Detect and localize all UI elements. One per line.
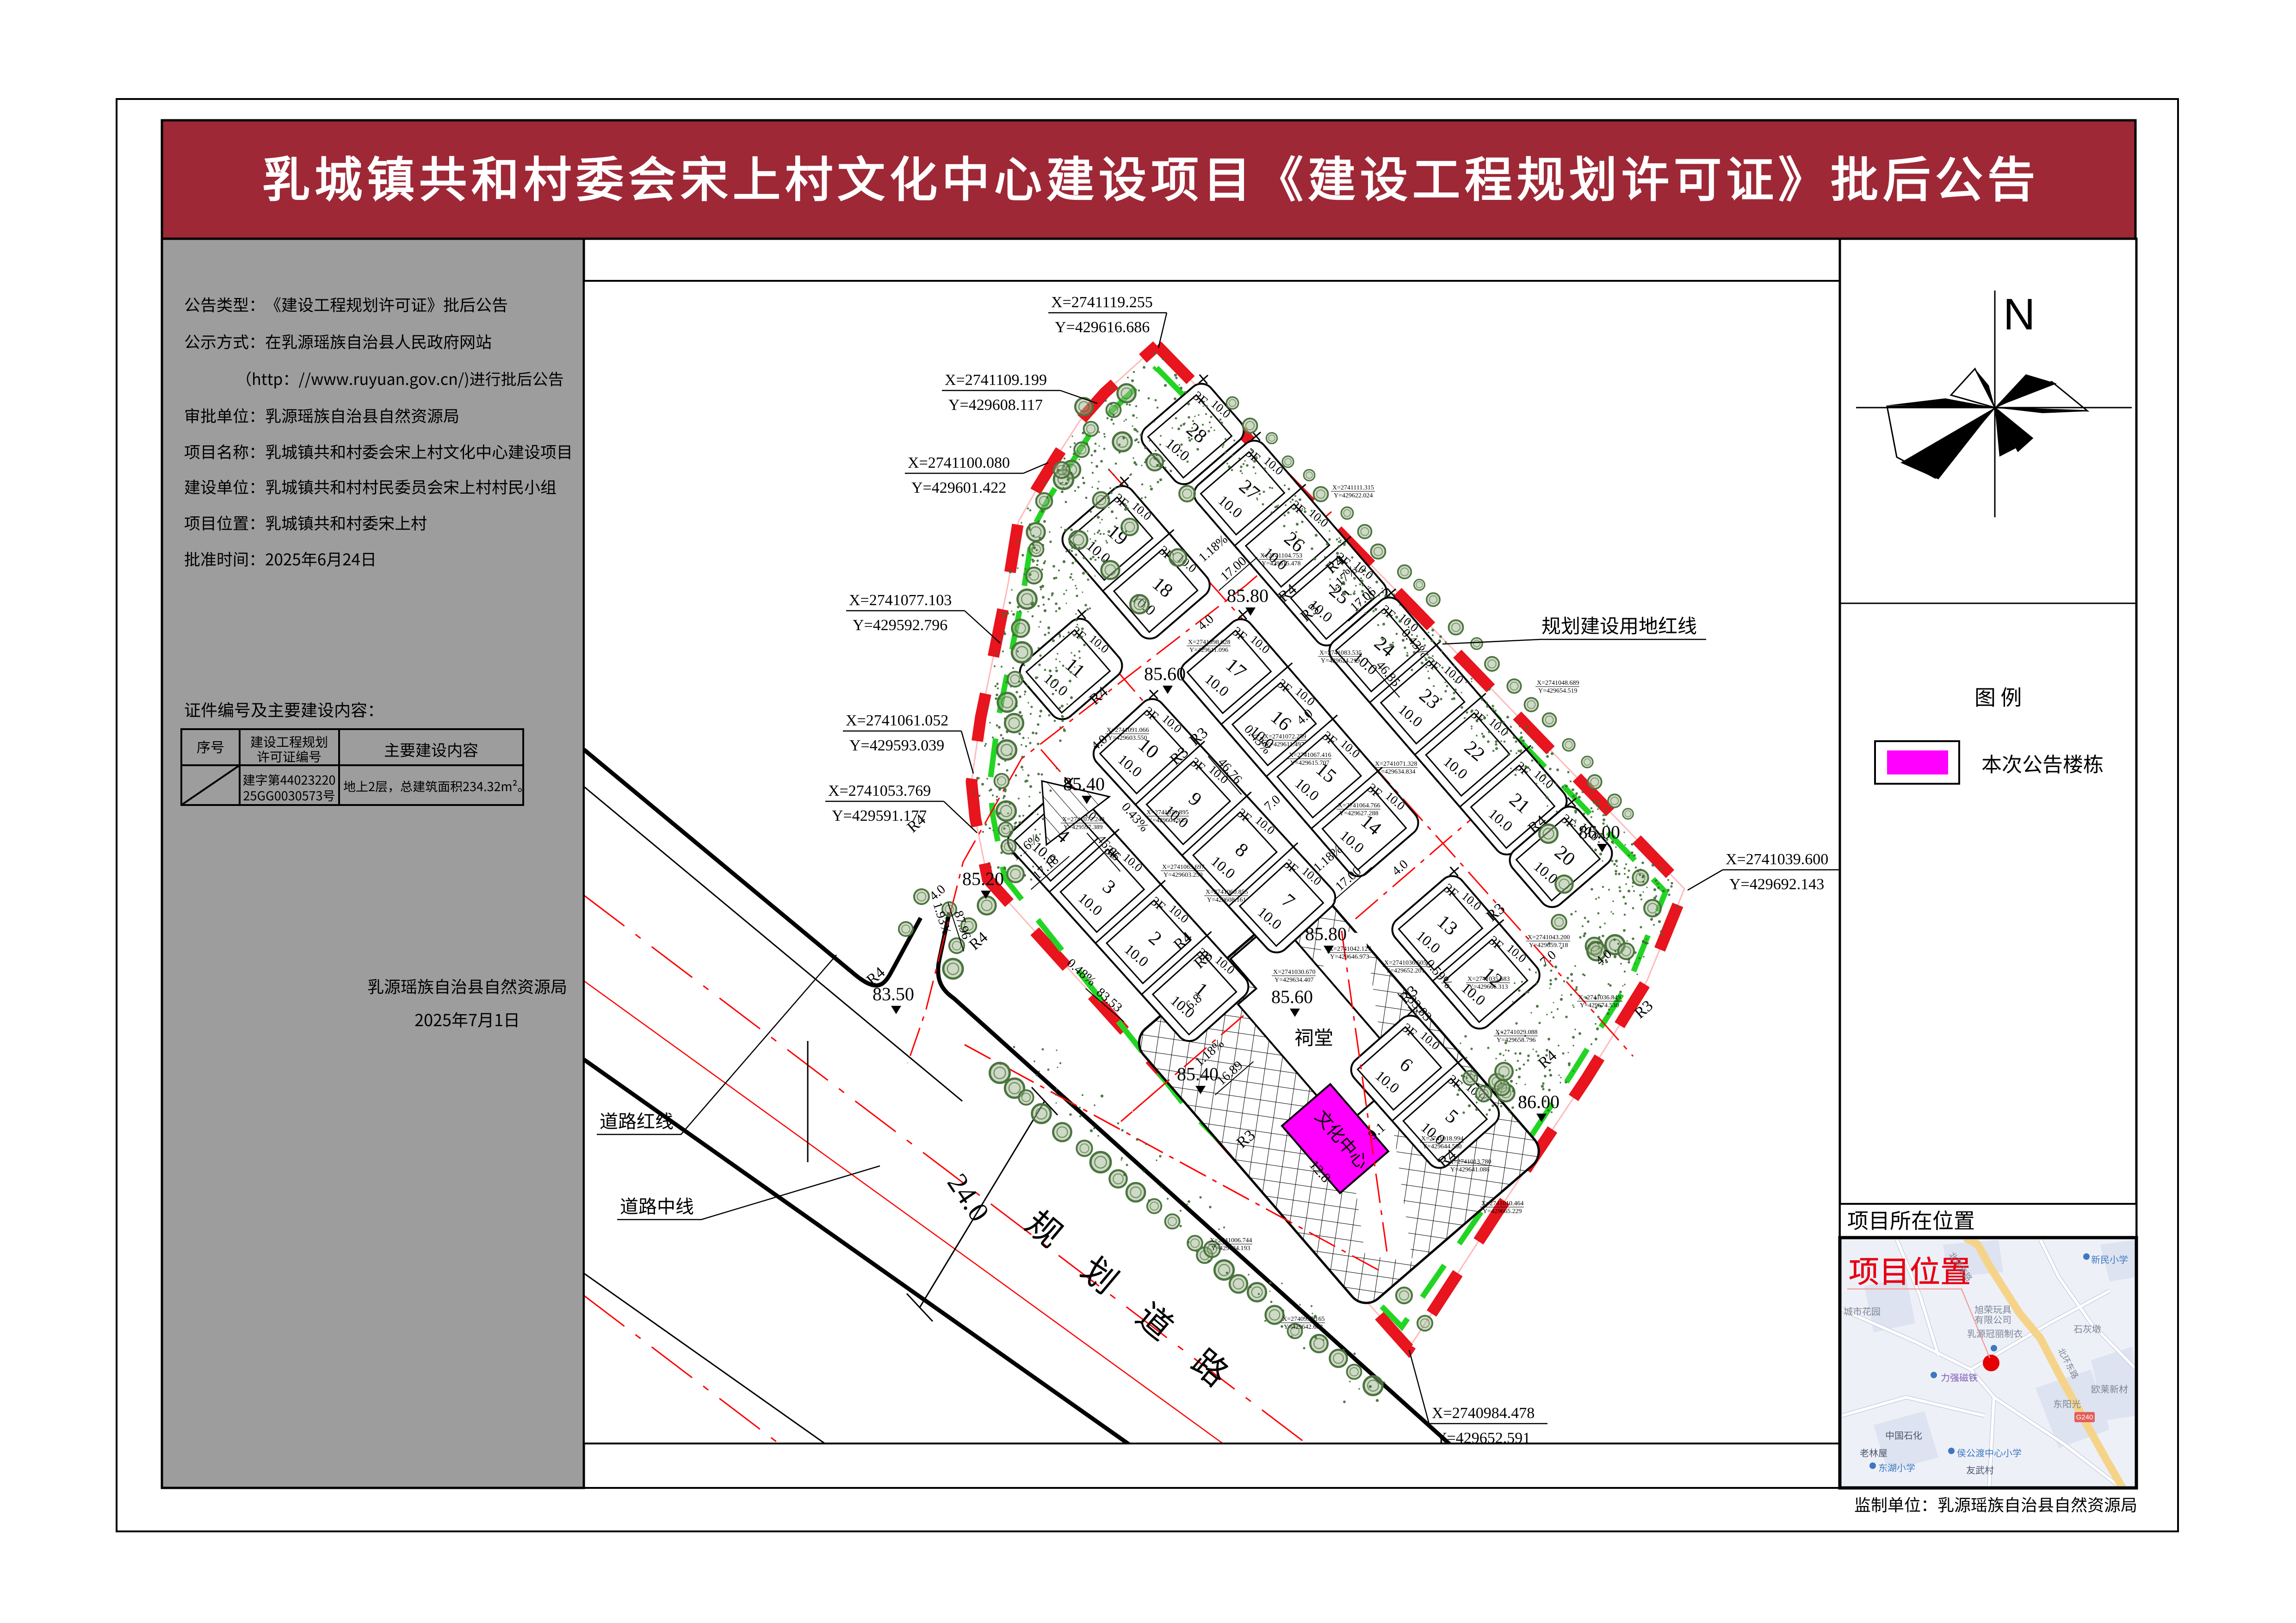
svg-text:Y=429665.229: Y=429665.229 bbox=[1483, 1208, 1522, 1215]
svg-text:X=2741119.255: X=2741119.255 bbox=[1051, 294, 1153, 311]
svg-text:Y=429615.478: Y=429615.478 bbox=[1262, 560, 1301, 567]
svg-text:Y=429611.497: Y=429611.497 bbox=[1265, 741, 1304, 748]
svg-text:Y=429658.796: Y=429658.796 bbox=[1497, 1037, 1536, 1044]
svg-text:Y=429652.201: Y=429652.201 bbox=[1386, 967, 1425, 974]
svg-text:X=2741048.689: X=2741048.689 bbox=[1537, 680, 1579, 687]
svg-text:85.40: 85.40 bbox=[1063, 774, 1105, 794]
svg-text:Y=429597.389: Y=429597.389 bbox=[1064, 824, 1103, 831]
svg-text:Y=429634.407: Y=429634.407 bbox=[1275, 977, 1314, 984]
svg-text:Y=429608.161: Y=429608.161 bbox=[1207, 897, 1246, 904]
svg-text:X=2741039.600: X=2741039.600 bbox=[1726, 851, 1828, 868]
svg-text:85.60: 85.60 bbox=[1271, 986, 1313, 1007]
svg-text:X=2741053.769: X=2741053.769 bbox=[828, 782, 931, 799]
svg-text:Y=429634.193: Y=429634.193 bbox=[1211, 1245, 1250, 1252]
svg-text:X=2741061.052: X=2741061.052 bbox=[846, 712, 948, 729]
svg-text:Y=429692.143: Y=429692.143 bbox=[1729, 876, 1824, 893]
svg-text:X=2741013.780: X=2741013.780 bbox=[1449, 1158, 1491, 1165]
svg-text:X=2740984.478: X=2740984.478 bbox=[1432, 1405, 1535, 1422]
svg-text:G240: G240 bbox=[2076, 1413, 2093, 1421]
svg-text:Y=429622.024: Y=429622.024 bbox=[1334, 492, 1373, 499]
svg-text:85.20: 85.20 bbox=[962, 868, 1004, 889]
svg-text:Y=429615.707: Y=429615.707 bbox=[1290, 760, 1330, 767]
svg-text:X=2741109.199: X=2741109.199 bbox=[945, 372, 1047, 389]
svg-text:Y=429659.718: Y=429659.718 bbox=[1529, 942, 1568, 949]
svg-text:X=2741083.535: X=2741083.535 bbox=[1319, 650, 1362, 657]
svg-text:Y=429666.313: Y=429666.313 bbox=[1469, 984, 1508, 991]
svg-text:Y=429627.288: Y=429627.288 bbox=[1339, 810, 1379, 817]
svg-text:86.00: 86.00 bbox=[1578, 822, 1620, 842]
svg-text:83.50: 83.50 bbox=[873, 984, 914, 1004]
svg-text:X=2741065.697: X=2741065.697 bbox=[1162, 864, 1205, 871]
svg-text:Y=429634.834: Y=429634.834 bbox=[1376, 768, 1416, 775]
svg-text:X=2741071.328: X=2741071.328 bbox=[1375, 761, 1417, 768]
svg-text:X=2741104.753: X=2741104.753 bbox=[1260, 552, 1302, 559]
svg-text:X=2741111.315: X=2741111.315 bbox=[1332, 484, 1374, 491]
svg-text:X=2741006.744: X=2741006.744 bbox=[1210, 1237, 1252, 1244]
svg-text:X=2741072.259: X=2741072.259 bbox=[1264, 733, 1306, 740]
svg-text:Y=429642.683: Y=429642.683 bbox=[1284, 1324, 1323, 1331]
svg-text:Y=429591.177: Y=429591.177 bbox=[832, 807, 927, 824]
svg-text:X=2741042.127: X=2741042.127 bbox=[1329, 946, 1371, 953]
svg-text:X=2741064.766: X=2741064.766 bbox=[1338, 802, 1380, 809]
svg-text:X=2741091.066: X=2741091.066 bbox=[1107, 727, 1149, 734]
svg-text:X=2741077.103: X=2741077.103 bbox=[849, 592, 952, 609]
svg-text:X=2741036.849: X=2741036.849 bbox=[1578, 994, 1621, 1001]
svg-text:85.60: 85.60 bbox=[1144, 663, 1186, 684]
svg-text:X=2741018.994: X=2741018.994 bbox=[1421, 1135, 1464, 1142]
svg-text:X=2741060.855: X=2741060.855 bbox=[1206, 889, 1248, 896]
svg-text:Y=429593.039: Y=429593.039 bbox=[849, 737, 944, 754]
svg-text:Y=429592.796: Y=429592.796 bbox=[853, 617, 947, 634]
svg-text:Y=429644.560: Y=429644.560 bbox=[1423, 1143, 1462, 1150]
svg-text:85.80: 85.80 bbox=[1305, 923, 1347, 944]
svg-text:X=2741100.080: X=2741100.080 bbox=[908, 454, 1010, 471]
svg-text:X=2741098.628: X=2741098.628 bbox=[1188, 639, 1231, 646]
svg-text:Y=429601.422: Y=429601.422 bbox=[911, 479, 1006, 496]
svg-text:Y=429603.250: Y=429603.250 bbox=[1163, 872, 1203, 879]
svg-text:X=2741035.683: X=2741035.683 bbox=[1467, 976, 1510, 983]
svg-text:X=2741029.088: X=2741029.088 bbox=[1495, 1029, 1538, 1036]
svg-text:Y=429654.519: Y=429654.519 bbox=[1538, 688, 1578, 694]
svg-text:X=2741079.895: X=2741079.895 bbox=[1146, 809, 1189, 816]
svg-text:N: N bbox=[2003, 290, 2035, 339]
svg-text:X=2741043.200: X=2741043.200 bbox=[1528, 934, 1570, 941]
svg-text:Y=429603.550: Y=429603.550 bbox=[1108, 735, 1147, 742]
svg-text:Y=429624.219: Y=429624.219 bbox=[1321, 657, 1360, 664]
svg-text:Y=429646.973: Y=429646.973 bbox=[1330, 954, 1369, 960]
svg-text:Y=429608.117: Y=429608.117 bbox=[948, 396, 1043, 414]
svg-text:Y=429616.686: Y=429616.686 bbox=[1055, 319, 1150, 336]
svg-text:X=2741010.464: X=2741010.464 bbox=[1481, 1200, 1524, 1207]
svg-text:85.40: 85.40 bbox=[1177, 1064, 1219, 1084]
svg-text:86.00: 86.00 bbox=[1518, 1091, 1560, 1112]
svg-text:X=2741067.416: X=2741067.416 bbox=[1289, 752, 1331, 759]
svg-text:Y=429674.530: Y=429674.530 bbox=[1580, 1002, 1619, 1009]
svg-text:Y=429604.935: Y=429604.935 bbox=[1148, 817, 1187, 824]
svg-text:Y=429641.088: Y=429641.088 bbox=[1450, 1166, 1490, 1173]
svg-text:X=2741036.605: X=2741036.605 bbox=[1384, 960, 1427, 966]
svg-text:X=2741030.670: X=2741030.670 bbox=[1273, 969, 1316, 976]
svg-text:X=2740997.165: X=2740997.165 bbox=[1282, 1316, 1325, 1323]
svg-text:85.80: 85.80 bbox=[1227, 585, 1269, 606]
svg-text:X=2741072.243: X=2741072.243 bbox=[1062, 816, 1105, 823]
svg-text:Y=429611.096: Y=429611.096 bbox=[1189, 647, 1228, 654]
